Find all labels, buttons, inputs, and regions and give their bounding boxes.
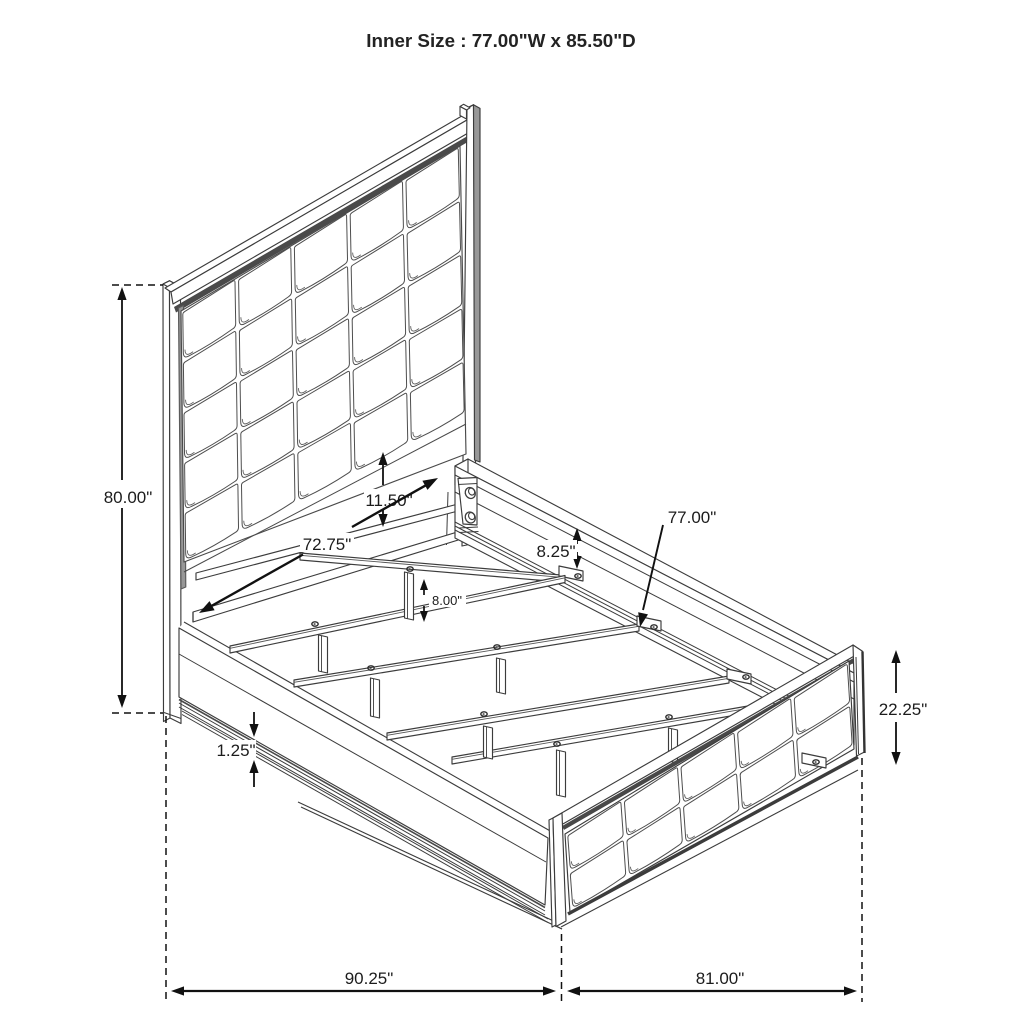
- svg-text:72.75": 72.75": [303, 535, 352, 554]
- svg-text:8.00": 8.00": [432, 593, 462, 608]
- svg-text:81.00": 81.00": [696, 969, 745, 988]
- svg-text:Inner Size : 77.00"W x 85.50"D: Inner Size : 77.00"W x 85.50"D: [366, 30, 635, 51]
- svg-text:8.25": 8.25": [536, 542, 575, 561]
- svg-text:90.25": 90.25": [345, 969, 394, 988]
- svg-text:80.00": 80.00": [104, 488, 153, 507]
- svg-text:77.00": 77.00": [668, 508, 717, 527]
- svg-text:1.25": 1.25": [216, 741, 255, 760]
- svg-text:22.25": 22.25": [879, 700, 928, 719]
